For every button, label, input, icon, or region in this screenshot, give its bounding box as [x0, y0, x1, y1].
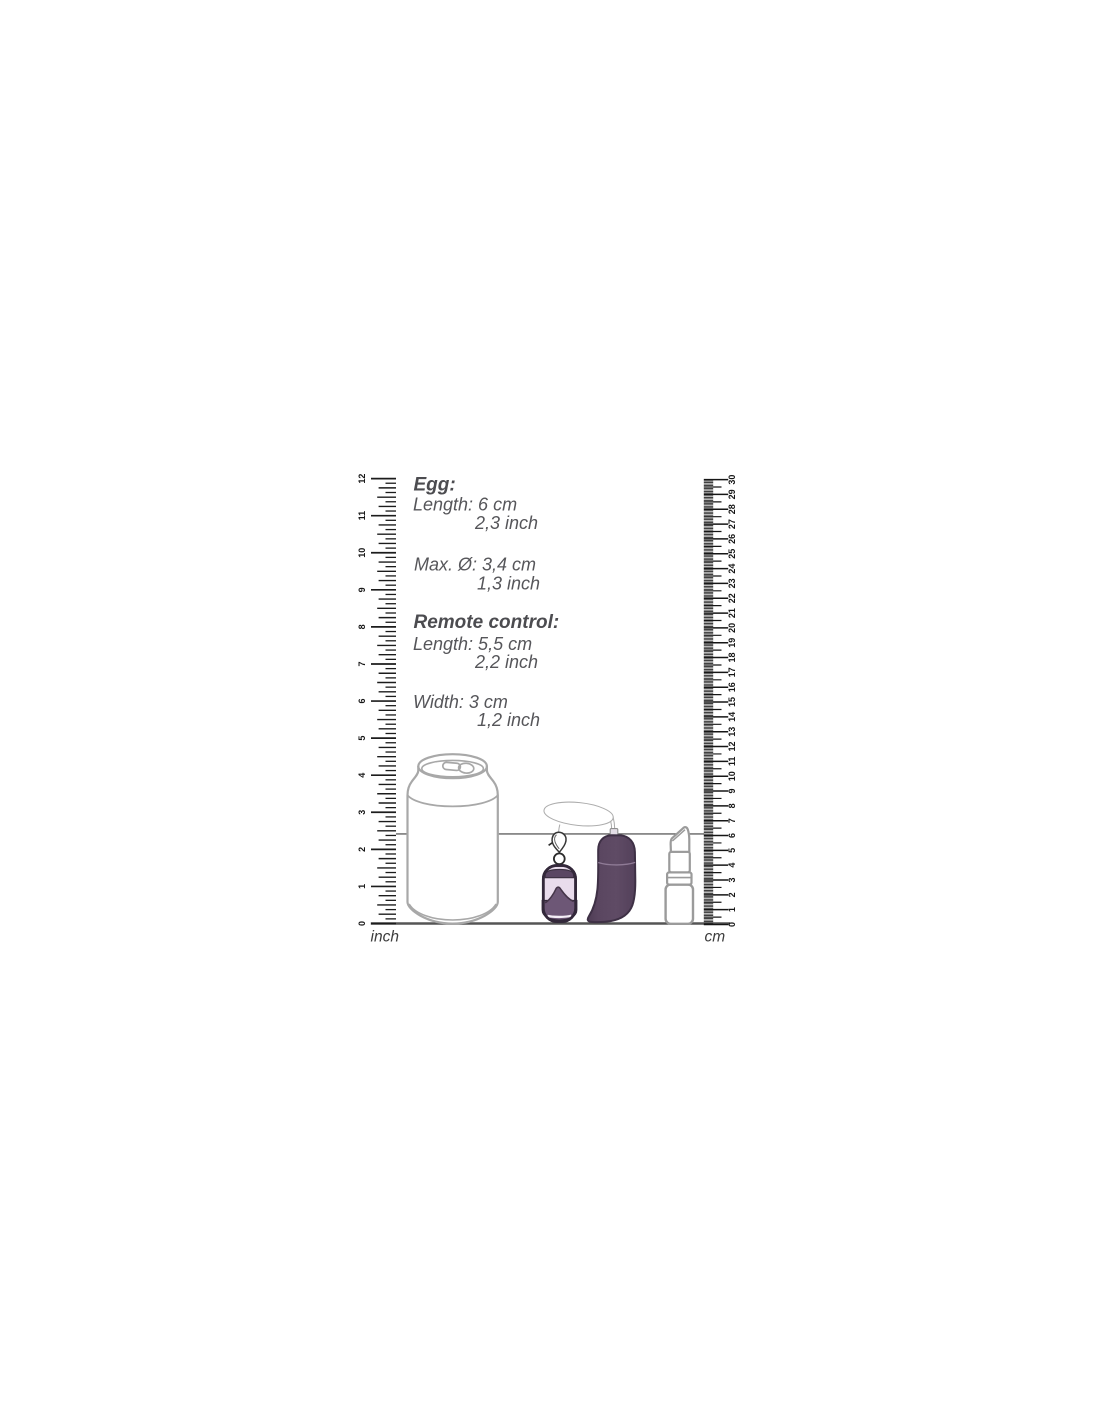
svg-text:17: 17: [727, 667, 737, 677]
svg-text:10: 10: [727, 771, 737, 781]
svg-text:1,3 inch: 1,3 inch: [477, 573, 540, 593]
svg-text:24: 24: [727, 564, 737, 574]
svg-text:cm: cm: [705, 929, 726, 946]
svg-text:11: 11: [727, 757, 737, 767]
svg-text:10: 10: [357, 548, 367, 558]
svg-text:inch: inch: [371, 929, 399, 946]
svg-text:20: 20: [727, 623, 737, 633]
svg-text:Egg:: Egg:: [414, 475, 456, 496]
svg-text:22: 22: [727, 593, 737, 603]
svg-text:Remote control:: Remote control:: [414, 612, 560, 633]
svg-text:Width: 3 cm: Width: 3 cm: [413, 692, 508, 712]
svg-text:2: 2: [357, 847, 367, 852]
svg-text:27: 27: [727, 519, 737, 529]
svg-text:0: 0: [357, 921, 367, 926]
svg-text:Length: 5,5 cm: Length: 5,5 cm: [413, 634, 532, 654]
svg-text:5: 5: [727, 848, 737, 853]
svg-text:12: 12: [727, 742, 737, 752]
svg-text:1: 1: [357, 884, 367, 889]
svg-text:14: 14: [727, 712, 737, 722]
svg-text:9: 9: [727, 789, 737, 794]
svg-text:6: 6: [357, 699, 367, 704]
svg-text:29: 29: [727, 489, 737, 499]
svg-text:7: 7: [357, 661, 367, 666]
svg-text:Max. Ø: 3,4 cm: Max. Ø: 3,4 cm: [414, 554, 536, 574]
svg-text:Length: 6 cm: Length: 6 cm: [413, 495, 517, 515]
svg-text:3: 3: [727, 878, 737, 883]
svg-text:30: 30: [727, 475, 737, 485]
svg-text:3: 3: [357, 810, 367, 815]
svg-text:23: 23: [727, 578, 737, 588]
svg-text:16: 16: [727, 682, 737, 692]
svg-text:12: 12: [357, 474, 367, 484]
svg-text:4: 4: [727, 863, 737, 868]
svg-text:11: 11: [357, 511, 367, 521]
svg-text:2,2 inch: 2,2 inch: [474, 652, 538, 672]
svg-text:5: 5: [357, 736, 367, 741]
svg-text:18: 18: [727, 653, 737, 663]
svg-text:21: 21: [727, 608, 737, 618]
svg-text:1: 1: [727, 907, 737, 912]
svg-text:1,2 inch: 1,2 inch: [477, 710, 540, 730]
svg-text:15: 15: [727, 697, 737, 707]
svg-text:26: 26: [727, 534, 737, 544]
svg-text:4: 4: [357, 773, 367, 778]
svg-text:13: 13: [727, 727, 737, 737]
svg-text:8: 8: [727, 803, 737, 808]
svg-text:9: 9: [357, 587, 367, 592]
svg-text:6: 6: [727, 833, 737, 838]
svg-text:8: 8: [357, 624, 367, 629]
svg-text:25: 25: [727, 549, 737, 559]
svg-text:2,3 inch: 2,3 inch: [474, 513, 538, 533]
svg-text:0: 0: [727, 922, 737, 927]
svg-text:28: 28: [727, 504, 737, 514]
svg-text:2: 2: [727, 892, 737, 897]
svg-text:19: 19: [727, 638, 737, 648]
svg-text:7: 7: [727, 818, 737, 823]
